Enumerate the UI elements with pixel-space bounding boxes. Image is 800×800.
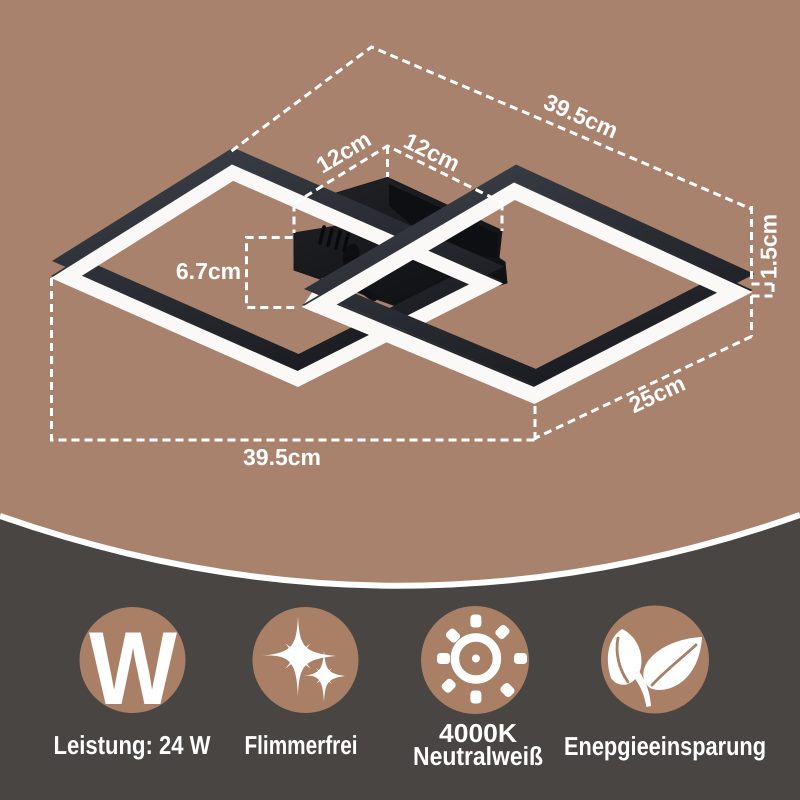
- svg-text:Leistung: 24 W: Leistung: 24 W: [54, 730, 211, 760]
- svg-text:Flimmerfrei: Flimmerfrei: [245, 730, 358, 760]
- svg-text:W: W: [89, 611, 178, 727]
- svg-text:Enepgieeinsparung: Enepgieeinsparung: [564, 731, 766, 761]
- svg-text:39.5cm: 39.5cm: [243, 444, 321, 470]
- svg-text:6.7cm: 6.7cm: [176, 258, 241, 284]
- svg-text:Neutralweiß: Neutralweiß: [413, 741, 543, 771]
- svg-text:1.5cm: 1.5cm: [756, 214, 782, 279]
